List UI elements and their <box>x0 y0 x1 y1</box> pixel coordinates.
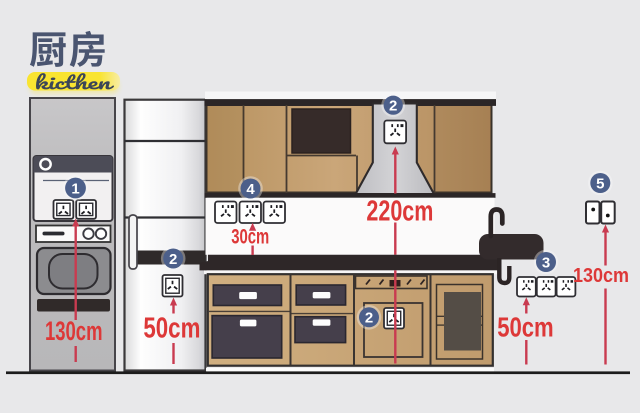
svg-text:2: 2 <box>169 251 177 268</box>
svg-text:130cm: 130cm <box>573 265 629 287</box>
svg-text:50cm: 50cm <box>497 311 554 342</box>
svg-text:2: 2 <box>389 98 397 115</box>
svg-text:1: 1 <box>71 180 79 197</box>
svg-text:50cm: 50cm <box>143 313 200 345</box>
svg-text:130cm: 130cm <box>45 316 103 346</box>
svg-text:5: 5 <box>596 175 604 192</box>
svg-text:220cm: 220cm <box>366 196 433 228</box>
svg-text:3: 3 <box>542 254 550 271</box>
svg-text:30cm: 30cm <box>231 225 269 248</box>
svg-text:4: 4 <box>246 181 255 198</box>
svg-text:2: 2 <box>365 310 373 327</box>
